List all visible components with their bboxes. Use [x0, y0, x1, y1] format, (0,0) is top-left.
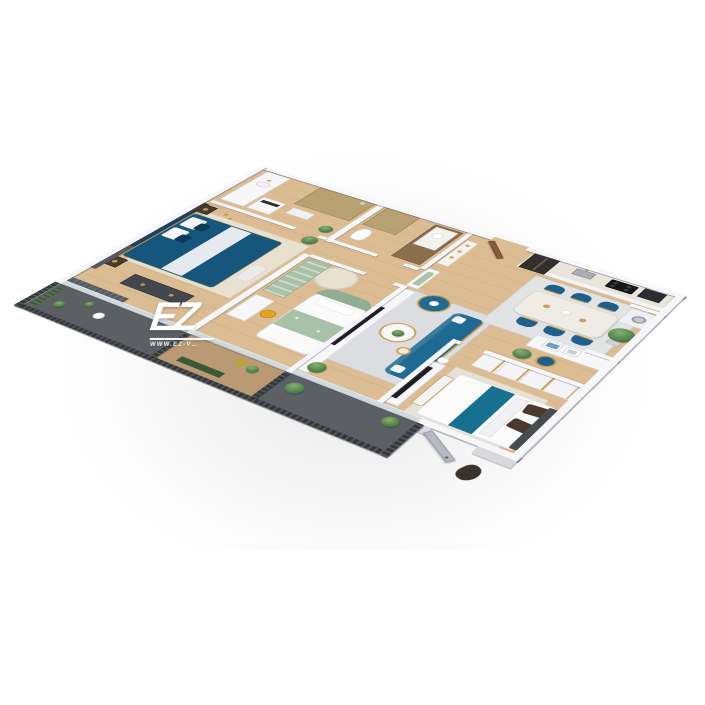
- table-lamp-icon: [111, 259, 119, 263]
- sculpture-decor: [451, 462, 487, 483]
- watermark: EZ WWW.EZ-V…: [146, 297, 219, 348]
- burner-icon: [609, 284, 616, 287]
- watermark-url: WWW.EZ-V…: [146, 342, 213, 348]
- fridge-handle-icon: [532, 258, 548, 270]
- door-handle-icon: [444, 456, 449, 459]
- table-lamp-icon: [202, 208, 210, 211]
- washer-door-icon: [629, 315, 648, 325]
- burner-icon: [623, 288, 630, 291]
- table-plant-icon: [389, 329, 406, 338]
- drawer-knob-icon: [139, 283, 146, 286]
- chair-pillow: [427, 300, 441, 307]
- render-canvas: EZ WWW.EZ-V…: [0, 0, 705, 705]
- ez-logo: EZ: [148, 297, 220, 337]
